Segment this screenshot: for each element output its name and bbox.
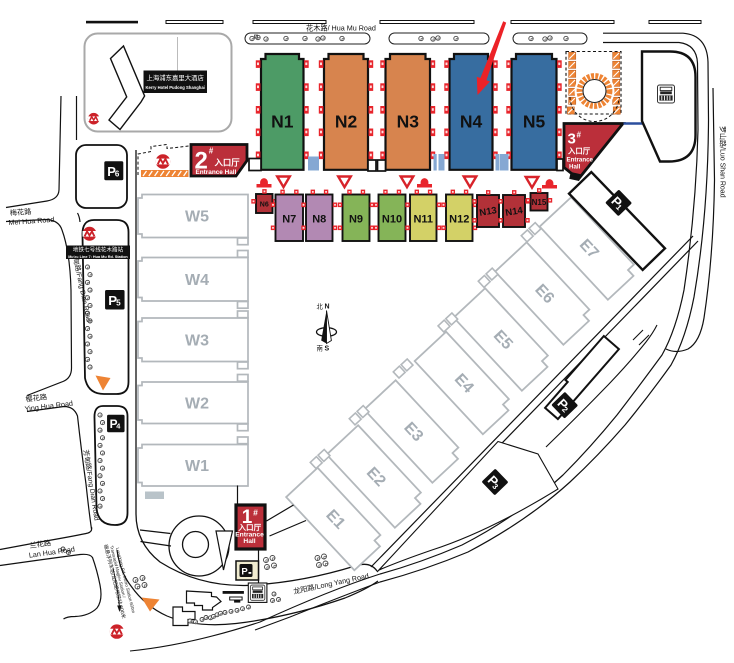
- svg-text:N2: N2: [335, 112, 358, 132]
- svg-text:W1: W1: [185, 458, 209, 475]
- svg-text:地铁七号线花木路站: 地铁七号线花木路站: [73, 246, 124, 254]
- svg-text:入口厅: 入口厅: [568, 147, 591, 156]
- svg-text:Entrance: Entrance: [567, 157, 594, 164]
- svg-text:P: P: [241, 567, 248, 578]
- svg-text:W2: W2: [185, 395, 209, 412]
- svg-text:N: N: [325, 304, 330, 311]
- svg-text:罗山路/Luo Shan Road: 罗山路/Luo Shan Road: [719, 126, 728, 198]
- svg-text:N15: N15: [532, 198, 547, 207]
- svg-text:Hall: Hall: [569, 164, 581, 171]
- svg-text:5: 5: [116, 298, 121, 307]
- svg-text:南: 南: [317, 344, 324, 353]
- svg-text:S: S: [325, 346, 330, 353]
- svg-text:Hall: Hall: [243, 538, 255, 545]
- svg-text:N6: N6: [260, 202, 269, 209]
- svg-text:N1: N1: [271, 112, 294, 132]
- svg-text:N11: N11: [413, 213, 433, 225]
- svg-text:N12: N12: [449, 213, 469, 225]
- svg-text:W3: W3: [185, 332, 209, 349]
- svg-text:Entrance Hall: Entrance Hall: [196, 169, 237, 176]
- svg-text:3: 3: [568, 131, 576, 148]
- svg-text:N3: N3: [397, 112, 420, 132]
- svg-text:入口厅: 入口厅: [237, 523, 261, 532]
- svg-text:N10: N10: [382, 213, 402, 225]
- svg-text:花木路/ Hua Mu Road: 花木路/ Hua Mu Road: [306, 24, 376, 33]
- svg-text:北: 北: [317, 303, 324, 311]
- svg-text:N7: N7: [282, 213, 296, 225]
- svg-text:Kerry Hotel Pudong Shanghai: Kerry Hotel Pudong Shanghai: [146, 85, 205, 90]
- svg-text:6: 6: [115, 169, 120, 178]
- svg-text:#: #: [577, 131, 582, 140]
- svg-text:N9: N9: [349, 213, 363, 225]
- svg-text:W5: W5: [185, 209, 209, 226]
- svg-text:N8: N8: [312, 213, 326, 225]
- svg-text:上海浦东嘉里大酒店: 上海浦东嘉里大酒店: [146, 73, 204, 82]
- svg-text:N4: N4: [460, 112, 483, 132]
- svg-text:入口厅: 入口厅: [214, 158, 241, 168]
- svg-text:W4: W4: [185, 272, 209, 289]
- svg-text:N5: N5: [523, 112, 546, 132]
- svg-text:#: #: [209, 147, 214, 156]
- svg-text:#: #: [253, 508, 258, 518]
